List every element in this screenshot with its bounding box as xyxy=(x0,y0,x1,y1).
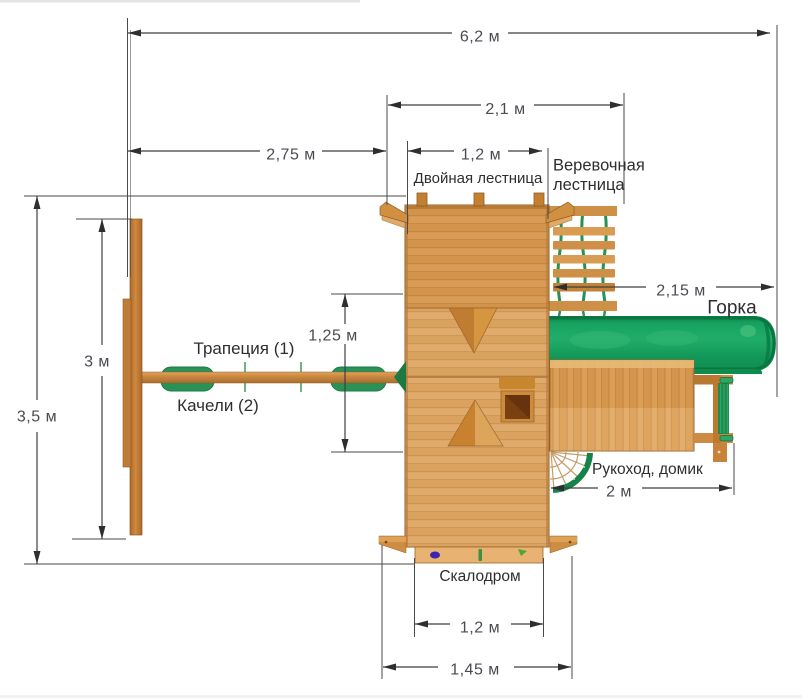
svg-text:3 м: 3 м xyxy=(84,354,110,371)
svg-text:Двойная лестница: Двойная лестница xyxy=(414,170,543,187)
svg-text:2,75 м: 2,75 м xyxy=(266,147,316,164)
svg-text:Горка: Горка xyxy=(707,298,757,319)
svg-text:1,25 м: 1,25 м xyxy=(308,328,358,345)
svg-text:Веревочная: Веревочная xyxy=(553,157,645,175)
svg-text:2 м: 2 м xyxy=(606,484,632,501)
svg-text:1,2 м: 1,2 м xyxy=(460,620,500,637)
svg-text:Трапеция (1): Трапеция (1) xyxy=(194,339,295,358)
svg-text:Скалодром: Скалодром xyxy=(439,568,520,585)
svg-text:2,1 м: 2,1 м xyxy=(485,101,525,118)
svg-text:6,2 м: 6,2 м xyxy=(460,29,500,46)
svg-text:2,15 м: 2,15 м xyxy=(656,283,706,300)
svg-text:1,45 м: 1,45 м xyxy=(450,662,500,679)
svg-text:1,2 м: 1,2 м xyxy=(461,147,501,164)
svg-text:лестница: лестница xyxy=(553,176,625,194)
svg-text:3,5 м: 3,5 м xyxy=(17,409,57,426)
svg-text:Качели (2): Качели (2) xyxy=(177,396,259,415)
svg-text:Рукоход, домик: Рукоход, домик xyxy=(592,461,703,478)
